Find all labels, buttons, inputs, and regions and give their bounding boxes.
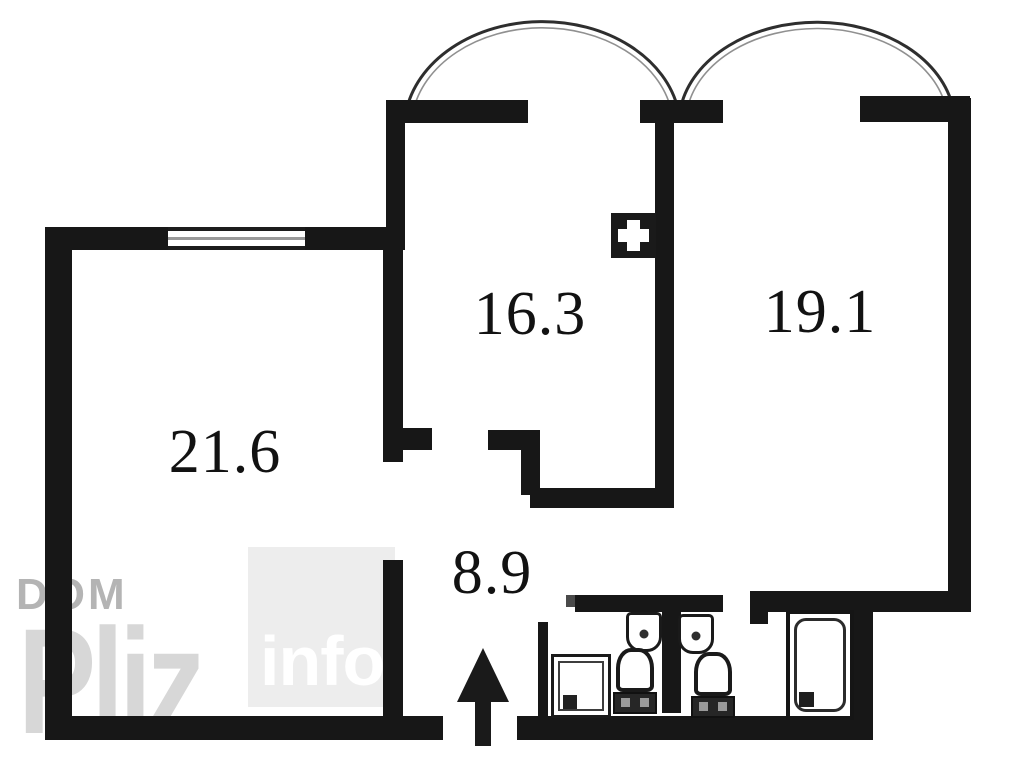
entrance-arrow-icon — [0, 0, 1024, 768]
entrance-arrow-head — [457, 648, 509, 702]
room-area-label-living-room: 21.6 — [169, 417, 282, 488]
room-area-label-hallway: 8.9 — [452, 538, 533, 609]
room-area-label-room-center: 16.3 — [474, 279, 587, 350]
room-area-label-room-right: 19.1 — [764, 277, 877, 348]
entrance-arrow-shaft — [475, 700, 491, 746]
floor-plan: DOM Pliz info — [0, 0, 1024, 768]
